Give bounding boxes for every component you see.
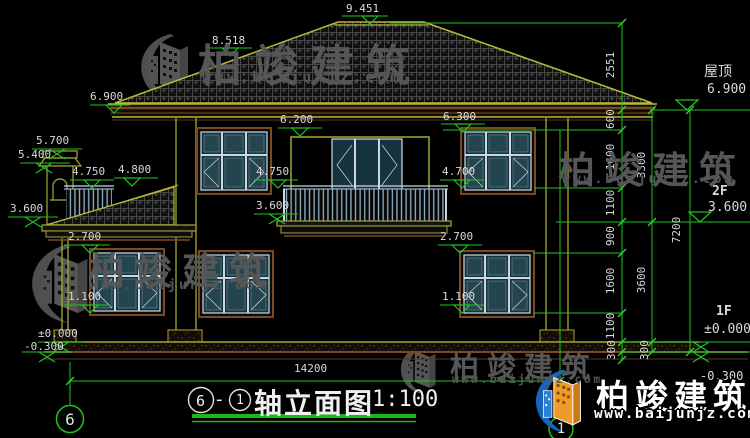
dim-overall-width: 14200: [294, 363, 327, 375]
floor-elev-roof: 6.900: [707, 84, 746, 96]
watermark-url-4: www.baijunjz.com: [452, 372, 603, 386]
title-separator: -: [216, 389, 223, 410]
level-balcony-door-top: 6.200: [280, 114, 313, 126]
cad-elevation-screenshot: 9.451 8.518 6.900 5.700 5.400 4.750 4.80…: [0, 0, 750, 438]
title-scale: 1:100: [372, 387, 438, 412]
dim-2551: 2551: [605, 43, 617, 87]
level-ridge: 9.451: [346, 3, 379, 15]
floor-elev-2f: 3.600: [708, 202, 747, 214]
dim-900: 900: [605, 214, 617, 258]
level-ground-left: ±0.000: [38, 328, 78, 340]
axis-number-left: 6: [62, 410, 78, 429]
dim-1600-b: 1600: [605, 259, 617, 303]
wall-bases: [54, 330, 574, 342]
level-f1-sill-right: 1.100: [442, 291, 475, 303]
level-chimney-cap: 5.400: [18, 149, 51, 161]
level-f2-sill-left: 4.750: [256, 166, 289, 178]
dim-3600: 3600: [636, 258, 648, 302]
roof-fascia: [108, 104, 657, 120]
axis-number-right: 1: [554, 421, 568, 437]
window-2f-right: [461, 128, 535, 194]
dim-300-b: 300: [639, 328, 651, 372]
window-2f-left: [197, 128, 271, 194]
watermark-url-3: www.baijunjz.com: [90, 277, 268, 293]
level-f1-window-top-right: 2.700: [440, 231, 473, 243]
level-f2-sill-right: 4.700: [442, 166, 475, 178]
page-title: 轴立面图: [254, 382, 374, 422]
floor-elev-1f: ±0.000: [704, 324, 750, 336]
dim-7200: 7200: [671, 208, 683, 252]
level-eave: 6.900: [90, 91, 123, 103]
level-chimney-top: 5.700: [36, 135, 69, 147]
watermark-url-2: www.baijunjz.com: [562, 172, 735, 187]
dim-300-a: 300: [606, 328, 618, 372]
floor-label-roof: 屋顶: [704, 66, 732, 78]
watermark-url-5: www.baijunjz.com: [594, 406, 750, 422]
porch-eave-band: [42, 225, 196, 240]
level-f2-floor-center: 3.600: [256, 200, 289, 212]
watermark-url-1: www.baijunjz.com: [202, 68, 403, 86]
level-grade-left: -0.300: [24, 341, 64, 353]
title-axis-from: 6: [196, 392, 205, 410]
level-porch-eave: 4.800: [118, 164, 151, 176]
window-1f-right: [460, 251, 534, 317]
floor-label-1f: 1F: [716, 306, 732, 318]
balcony-railing: [283, 186, 448, 221]
level-f2-floor-left: 3.600: [10, 203, 43, 215]
balcony-slab: [277, 221, 451, 236]
level-porch-rail: 4.750: [72, 166, 105, 178]
level-f2-window-top: 6.300: [443, 111, 476, 123]
title-axis-to: 1: [236, 393, 244, 408]
